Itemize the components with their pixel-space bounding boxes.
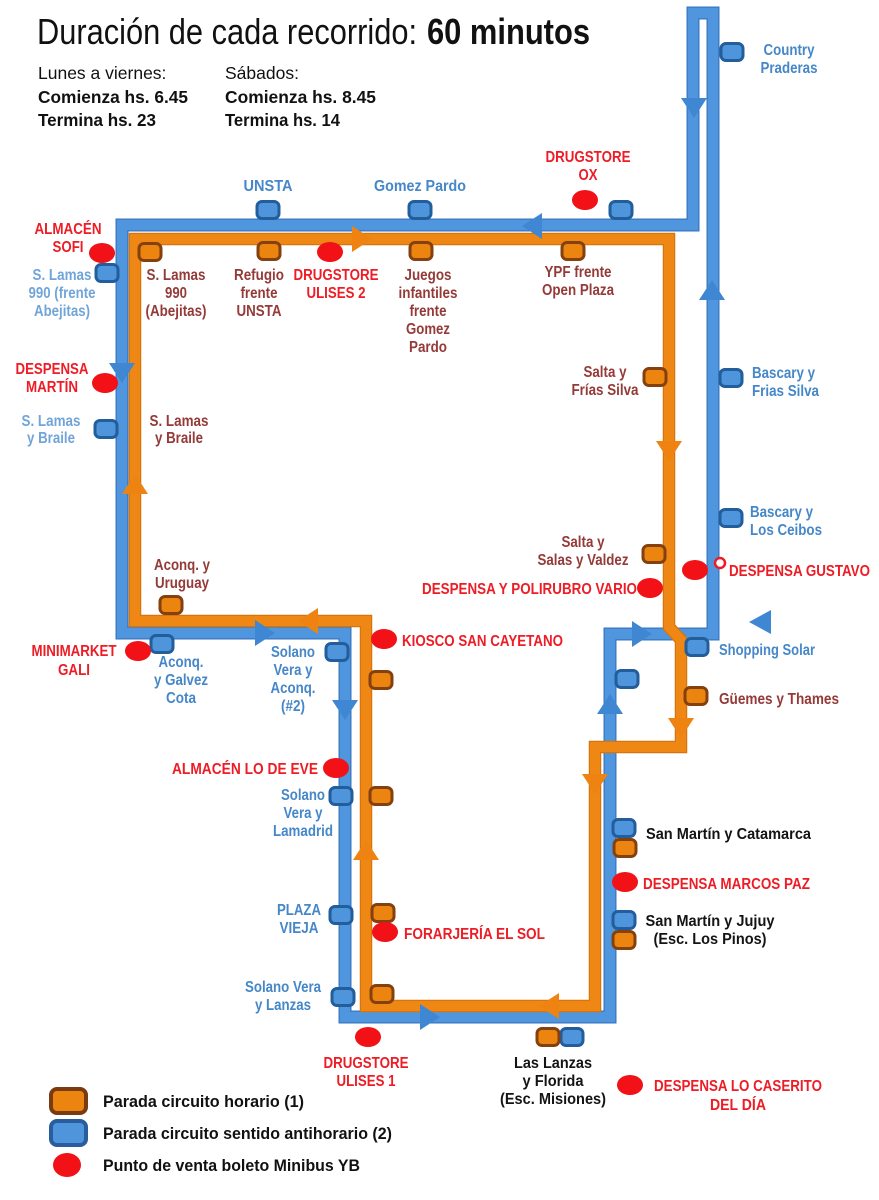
svg-text:ALMACÉN LO DE EVE: ALMACÉN LO DE EVE: [172, 761, 318, 778]
svg-text:Lamadrid: Lamadrid: [273, 823, 333, 840]
svg-text:Las Lanzas: Las Lanzas: [514, 1055, 592, 1072]
svg-text:Juegos: Juegos: [405, 267, 452, 284]
svg-text:Duración de cada recorrido:: Duración de cada recorrido:: [37, 11, 417, 52]
svg-text:Solano Vera: Solano Vera: [245, 979, 321, 996]
svg-text:Shopping Solar: Shopping Solar: [719, 642, 815, 659]
svg-text:MARTÍN: MARTÍN: [26, 379, 78, 396]
svg-text:infantiles: infantiles: [399, 285, 458, 302]
svg-text:Salta y: Salta y: [584, 364, 627, 381]
svg-text:DRUGSTORE: DRUGSTORE: [546, 149, 631, 166]
svg-text:Punto de venta boleto Minibus: Punto de venta boleto Minibus YB: [103, 1156, 360, 1175]
svg-text:y Florida: y Florida: [523, 1073, 584, 1090]
svg-text:UNSTA: UNSTA: [237, 303, 282, 320]
svg-text:(Esc. Misiones): (Esc. Misiones): [500, 1091, 606, 1108]
svg-text:Country: Country: [764, 42, 815, 59]
svg-text:Pardo: Pardo: [409, 339, 447, 356]
svg-text:ULISES 2: ULISES 2: [307, 285, 366, 302]
svg-text:frente: frente: [241, 285, 278, 302]
svg-text:DESPENSA MARCOS PAZ: DESPENSA MARCOS PAZ: [643, 876, 810, 893]
svg-text:Aconq.: Aconq.: [271, 680, 316, 697]
svg-text:Open Plaza: Open Plaza: [542, 282, 614, 299]
svg-text:PLAZA: PLAZA: [277, 902, 321, 919]
svg-text:DESPENSA Y POLIRUBRO VARIO: DESPENSA Y POLIRUBRO VARIO: [422, 581, 637, 598]
svg-text:Gomez: Gomez: [406, 321, 450, 338]
svg-text:Frias Silva: Frias Silva: [752, 383, 819, 400]
svg-text:Aconq. y: Aconq. y: [154, 557, 210, 574]
svg-text:S. Lamas: S. Lamas: [33, 267, 92, 284]
svg-text:Termina hs. 23: Termina hs. 23: [38, 110, 156, 130]
svg-text:DRUGSTORE: DRUGSTORE: [294, 267, 379, 284]
svg-text:Bascary y: Bascary y: [752, 365, 815, 382]
svg-text:DESPENSA: DESPENSA: [16, 361, 89, 378]
svg-text:Parada circuito horario (1): Parada circuito horario (1): [103, 1092, 304, 1111]
svg-text:Solano: Solano: [271, 644, 315, 661]
svg-text:Salas y Valdez: Salas y Valdez: [538, 552, 629, 569]
svg-text:Praderas: Praderas: [761, 60, 818, 77]
svg-text:San Martín y Catamarca: San Martín y Catamarca: [646, 826, 811, 843]
svg-text:ALMACÉN: ALMACÉN: [35, 221, 102, 238]
svg-text:Gomez Pardo: Gomez Pardo: [374, 178, 466, 195]
svg-text:San Martín y Jujuy: San Martín y Jujuy: [646, 913, 775, 930]
svg-text:Vera y: Vera y: [284, 805, 323, 822]
svg-text:MINIMARKET: MINIMARKET: [32, 643, 117, 660]
svg-text:Vera y: Vera y: [274, 662, 313, 679]
svg-text:DEL DÍA: DEL DÍA: [710, 1097, 766, 1114]
svg-text:frente: frente: [410, 303, 447, 320]
svg-text:Sábados:: Sábados:: [225, 63, 299, 83]
svg-text:S. Lamas: S. Lamas: [147, 267, 206, 284]
svg-text:Abejitas): Abejitas): [34, 303, 90, 320]
svg-text:ULISES 1: ULISES 1: [337, 1073, 396, 1090]
svg-text:y Braile: y Braile: [155, 430, 203, 447]
svg-text:FORARJERÍA EL SOL: FORARJERÍA EL SOL: [404, 926, 545, 943]
svg-text:Refugio: Refugio: [234, 267, 284, 284]
svg-text:S. Lamas: S. Lamas: [150, 413, 209, 430]
svg-text:Termina hs. 14: Termina hs. 14: [225, 110, 340, 130]
svg-text:Los Ceibos: Los Ceibos: [750, 522, 822, 539]
svg-text:Cota: Cota: [166, 690, 196, 707]
svg-text:Lunes a viernes:: Lunes a viernes:: [38, 63, 166, 83]
svg-text:y Galvez: y Galvez: [154, 672, 208, 689]
svg-text:Bascary y: Bascary y: [750, 504, 813, 521]
svg-text:Aconq.: Aconq.: [159, 654, 204, 671]
svg-text:Güemes y Thames: Güemes y Thames: [719, 691, 839, 708]
svg-text:Parada circuito sentido antiho: Parada circuito sentido antihorario (2): [103, 1124, 392, 1143]
svg-text:Comienza hs. 8.45: Comienza hs. 8.45: [225, 87, 376, 107]
svg-text:y Braile: y Braile: [27, 430, 75, 447]
svg-text:990: 990: [165, 285, 187, 302]
svg-text:VIEJA: VIEJA: [280, 920, 319, 937]
svg-text:DESPENSA LO CASERITO: DESPENSA LO CASERITO: [654, 1078, 822, 1095]
svg-text:DRUGSTORE: DRUGSTORE: [324, 1055, 409, 1072]
svg-text:Comienza hs. 6.45: Comienza hs. 6.45: [38, 87, 188, 107]
svg-text:Solano: Solano: [281, 787, 325, 804]
svg-text:UNSTA: UNSTA: [244, 178, 293, 195]
svg-text:DESPENSA GUSTAVO: DESPENSA GUSTAVO: [729, 563, 870, 580]
svg-text:60 minutos: 60 minutos: [427, 11, 590, 52]
svg-text:990 (frente: 990 (frente: [29, 285, 96, 302]
svg-text:(Esc. Los Pinos): (Esc. Los Pinos): [654, 931, 767, 948]
svg-text:YPF frente: YPF frente: [545, 264, 612, 281]
svg-text:Uruguay: Uruguay: [155, 575, 209, 592]
svg-text:OX: OX: [579, 167, 599, 184]
svg-text:KIOSCO SAN CAYETANO: KIOSCO SAN CAYETANO: [402, 633, 563, 650]
svg-text:(#2): (#2): [281, 698, 305, 715]
svg-text:GALI: GALI: [58, 662, 90, 679]
svg-text:Frías Silva: Frías Silva: [572, 382, 639, 399]
svg-text:S. Lamas: S. Lamas: [22, 413, 81, 430]
svg-text:Salta y: Salta y: [562, 534, 605, 551]
svg-text:y Lanzas: y Lanzas: [255, 997, 311, 1014]
svg-text:(Abejitas): (Abejitas): [146, 303, 207, 320]
svg-text:SOFI: SOFI: [53, 239, 84, 256]
